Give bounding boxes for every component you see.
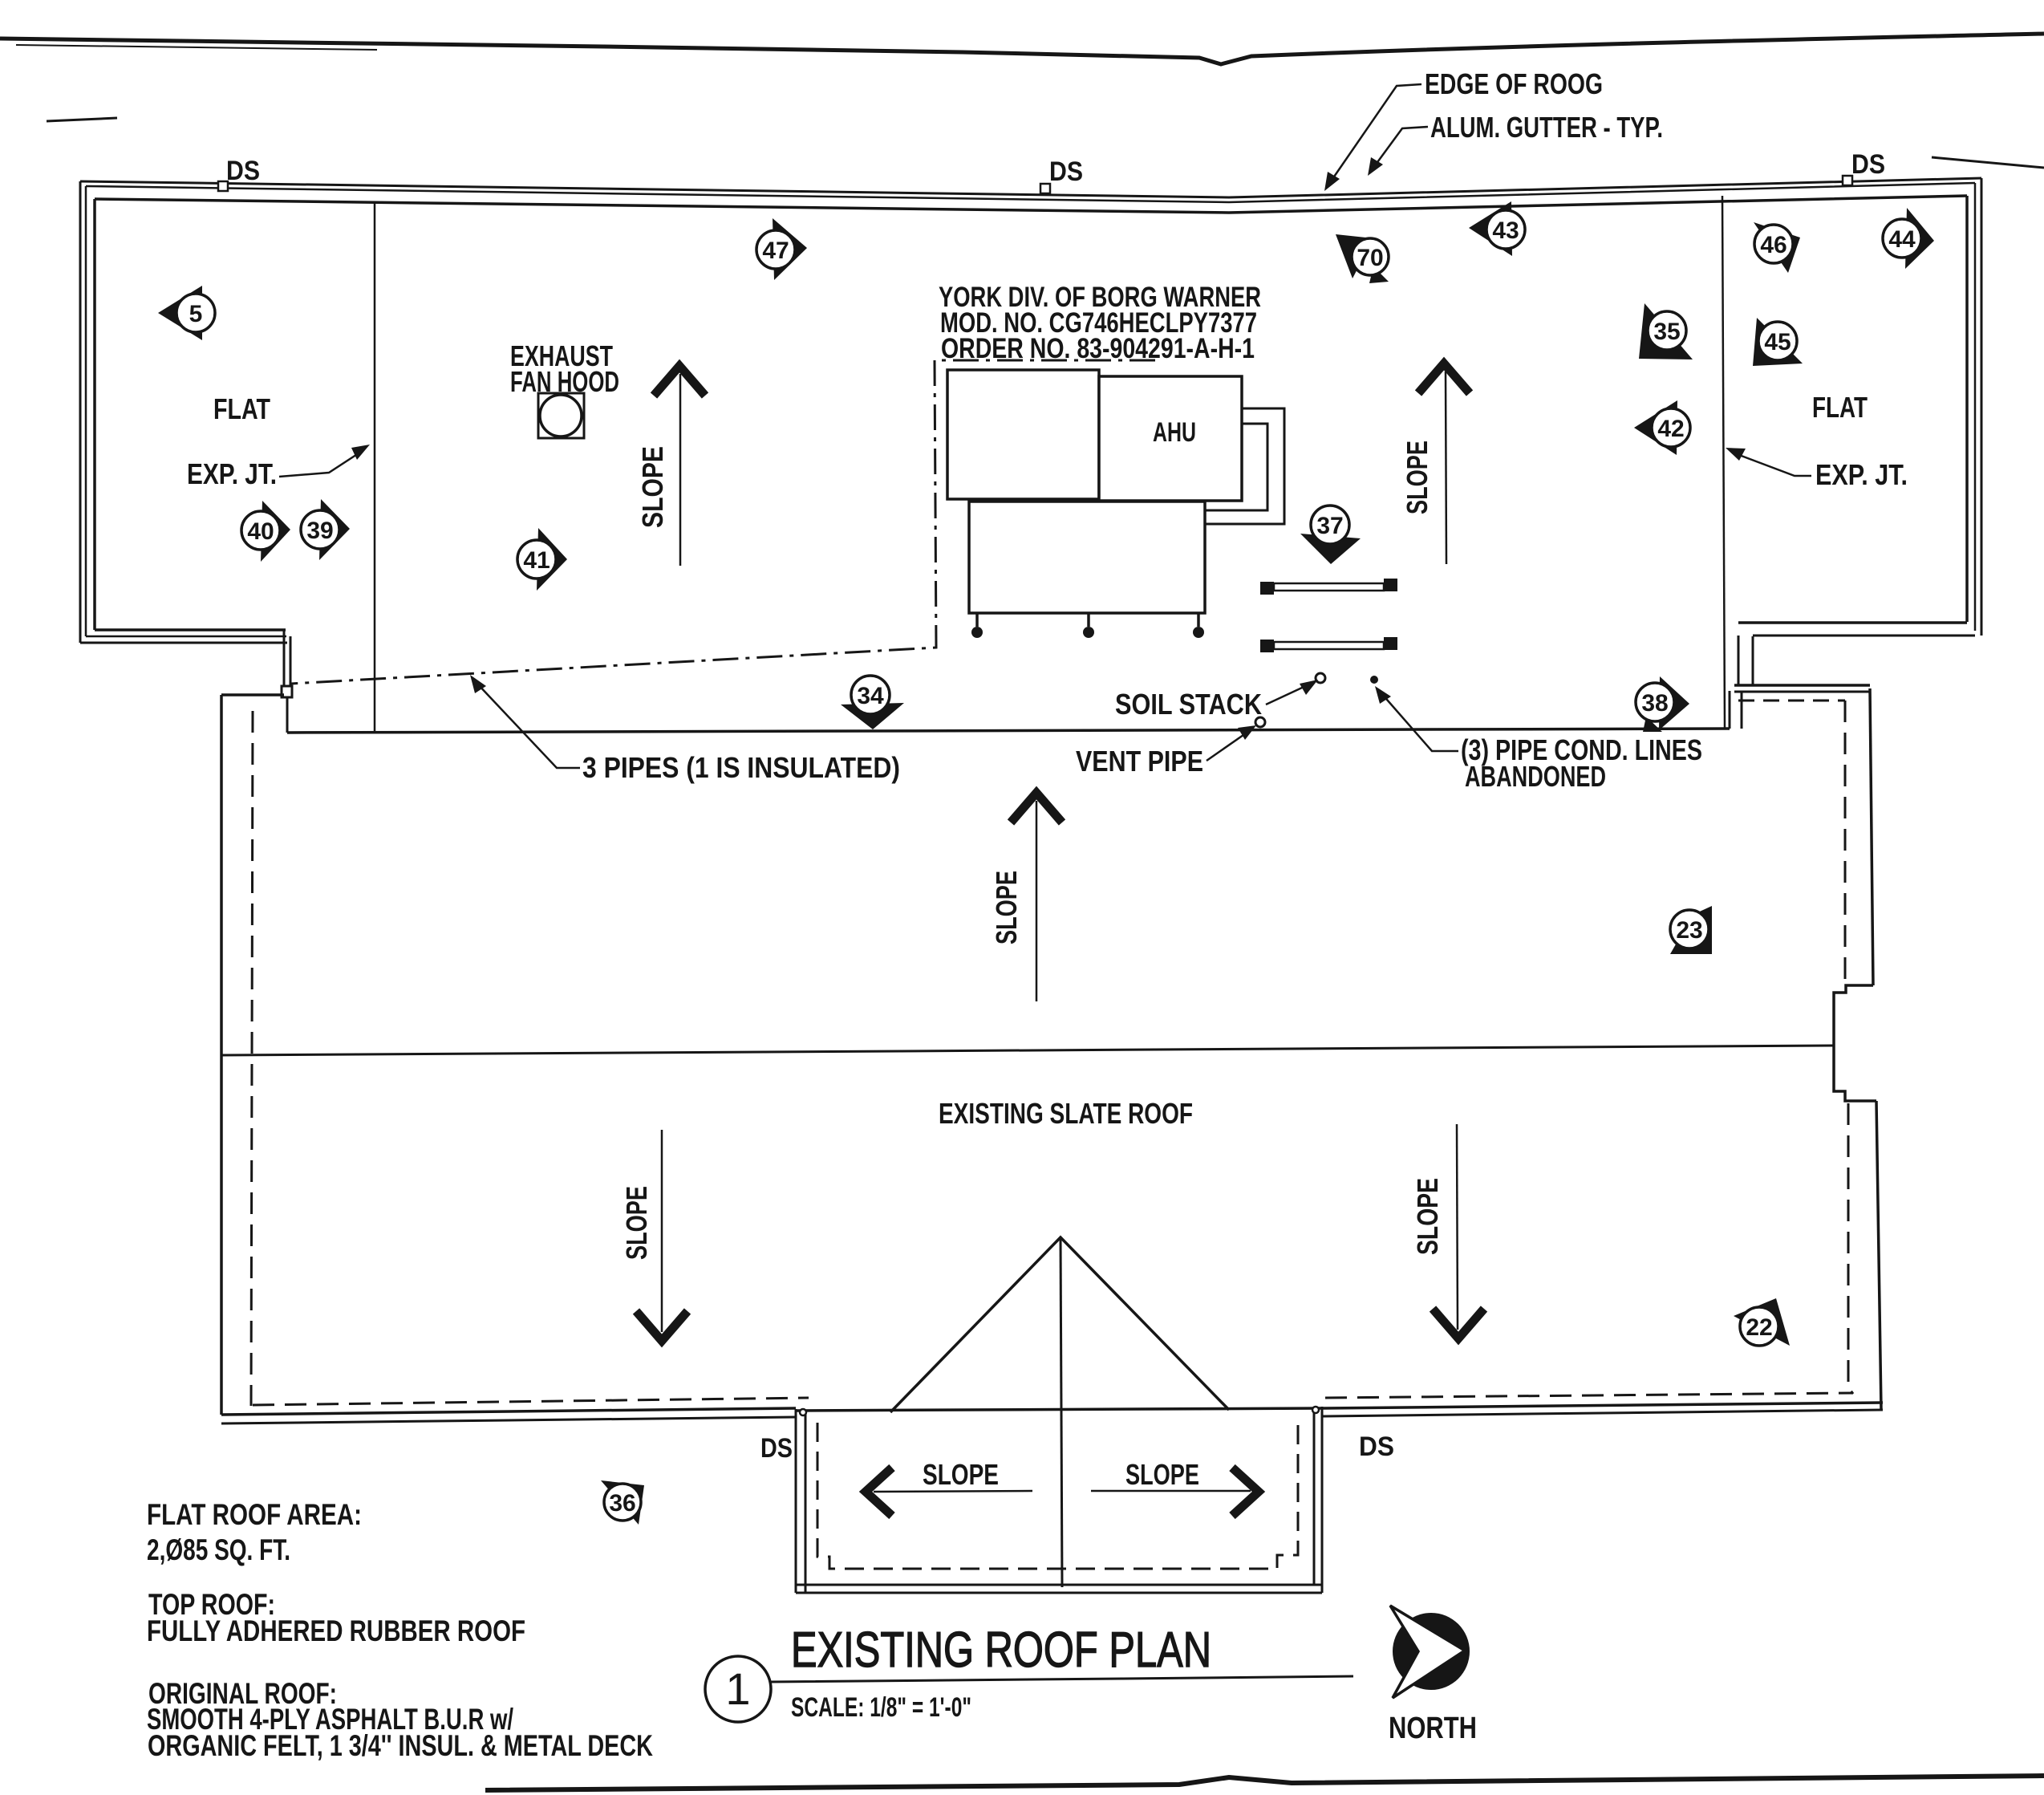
svg-text:38: 38	[1641, 690, 1668, 717]
svg-text:ALUM. GUTTER - TYP.: ALUM. GUTTER - TYP.	[1430, 111, 1663, 144]
svg-text:ORGANIC FELT, 1 3/4'' INSUL. &: ORGANIC FELT, 1 3/4'' INSUL. & METAL DEC…	[148, 1729, 653, 1762]
svg-text:FLAT ROOF AREA:: FLAT ROOF AREA:	[147, 1498, 362, 1531]
svg-text:35: 35	[1653, 319, 1680, 345]
svg-text:SLOPE: SLOPE	[1401, 441, 1434, 514]
svg-text:SLOPE: SLOPE	[636, 446, 669, 528]
svg-text:34: 34	[857, 683, 884, 709]
svg-text:SLOPE: SLOPE	[1125, 1458, 1199, 1491]
svg-text:SLOPE: SLOPE	[990, 871, 1023, 944]
svg-text:FULLY ADHERED RUBBER ROOF: FULLY ADHERED RUBBER ROOF	[147, 1614, 525, 1647]
svg-text:EXP. JT.: EXP. JT.	[187, 457, 277, 490]
svg-text:36: 36	[609, 1490, 635, 1517]
svg-text:FAN HOOD: FAN HOOD	[510, 365, 619, 398]
svg-text:42: 42	[1657, 416, 1684, 442]
svg-text:47: 47	[762, 238, 789, 264]
svg-text:AHU: AHU	[1153, 417, 1196, 448]
svg-text:22: 22	[1746, 1314, 1772, 1341]
svg-text:DS: DS	[1851, 149, 1885, 180]
svg-text:EXISTING SLATE ROOF: EXISTING SLATE ROOF	[939, 1097, 1193, 1130]
svg-text:FLAT: FLAT	[213, 392, 270, 425]
svg-text:DS: DS	[760, 1433, 793, 1464]
svg-text:NORTH: NORTH	[1389, 1712, 1477, 1745]
svg-text:45: 45	[1764, 329, 1791, 355]
svg-text:43: 43	[1492, 217, 1519, 244]
svg-text:EXISTING ROOF PLAN: EXISTING ROOF PLAN	[791, 1622, 1211, 1678]
svg-text:SLOPE: SLOPE	[1411, 1178, 1444, 1255]
svg-text:70: 70	[1357, 245, 1383, 271]
svg-text:VENT PIPE: VENT PIPE	[1076, 745, 1203, 778]
svg-text:46: 46	[1760, 232, 1786, 258]
svg-text:EXP. JT.: EXP. JT.	[1815, 458, 1908, 491]
svg-text:3 PIPES (1 IS INSULATED): 3 PIPES (1 IS INSULATED)	[582, 751, 900, 784]
svg-text:DS: DS	[1049, 156, 1083, 187]
svg-text:5: 5	[189, 301, 203, 327]
svg-text:DS: DS	[226, 156, 260, 186]
svg-text:ABANDONED: ABANDONED	[1465, 760, 1606, 793]
svg-text:2,Ø85 SQ. FT.: 2,Ø85 SQ. FT.	[147, 1533, 290, 1566]
svg-text:41: 41	[523, 547, 550, 574]
svg-text:SLOPE: SLOPE	[620, 1186, 653, 1260]
svg-text:SLOPE: SLOPE	[923, 1458, 999, 1491]
svg-text:SCALE: 1/8" = 1'-0": SCALE: 1/8" = 1'-0"	[791, 1692, 971, 1723]
svg-text:FLAT: FLAT	[1812, 391, 1868, 424]
svg-text:37: 37	[1316, 513, 1343, 539]
svg-text:1: 1	[725, 1663, 750, 1714]
svg-text:39: 39	[306, 518, 333, 544]
svg-text:SOIL STACK: SOIL STACK	[1115, 688, 1262, 721]
svg-text:EDGE OF ROOG: EDGE OF ROOG	[1425, 67, 1603, 100]
svg-text:40: 40	[247, 518, 274, 545]
svg-text:23: 23	[1676, 917, 1702, 944]
svg-text:ORDER NO. 83-904291-A-H-1: ORDER NO. 83-904291-A-H-1	[941, 333, 1255, 364]
svg-text:44: 44	[1888, 226, 1916, 253]
svg-text:DS: DS	[1359, 1432, 1394, 1462]
